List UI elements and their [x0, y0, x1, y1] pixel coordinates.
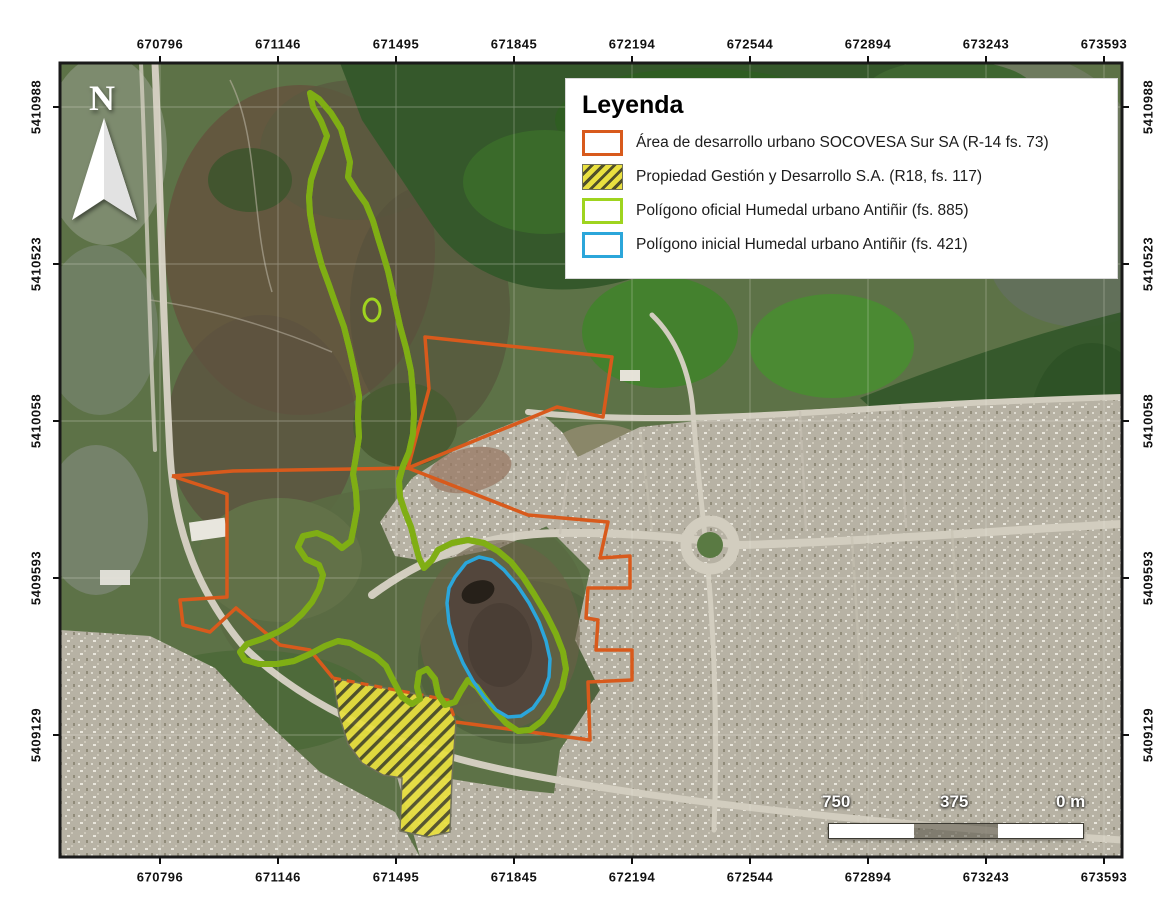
y-axis-label-left: 5409129 — [29, 708, 44, 762]
x-axis-label-bottom: 672544 — [727, 870, 773, 885]
green-outline-swatch — [582, 198, 623, 224]
svg-text:N: N — [89, 78, 115, 118]
legend-item-label: Área de desarrollo urbano SOCOVESA Sur S… — [636, 134, 1049, 152]
scale-bar: 750 375 0 m — [828, 792, 1086, 844]
x-axis-label-top: 670796 — [137, 37, 183, 52]
x-axis-label-top: 672894 — [845, 37, 891, 52]
x-axis-label-bottom: 671845 — [491, 870, 537, 885]
x-axis-label-bottom: 671146 — [255, 870, 301, 885]
x-axis-label-bottom: 673593 — [1081, 870, 1127, 885]
y-axis-label-left: 5410058 — [29, 394, 44, 448]
x-axis-label-top: 673593 — [1081, 37, 1127, 52]
x-axis-label-bottom: 673243 — [963, 870, 1009, 885]
x-axis-label-bottom: 670796 — [137, 870, 183, 885]
legend-item: Área de desarrollo urbano SOCOVESA Sur S… — [582, 130, 1103, 156]
y-axis-label-left: 5410988 — [29, 80, 44, 134]
industrial-building — [100, 570, 130, 585]
scale-label-750: 750 — [822, 792, 850, 812]
x-axis-label-bottom: 672894 — [845, 870, 891, 885]
blue-outline-swatch — [582, 232, 623, 258]
legend-title: Leyenda — [582, 91, 1103, 120]
legend-item-label: Polígono inicial Humedal urbano Antiñir … — [636, 236, 968, 254]
y-axis-label-left: 5410523 — [29, 237, 44, 291]
x-axis-label-bottom: 671495 — [373, 870, 419, 885]
x-axis-label-top: 671495 — [373, 37, 419, 52]
scale-label-375: 375 — [940, 792, 968, 812]
legend-item-label: Propiedad Gestión y Desarrollo S.A. (R18… — [636, 168, 982, 186]
x-axis-label-top: 671845 — [491, 37, 537, 52]
legend-item: Polígono inicial Humedal urbano Antiñir … — [582, 232, 1103, 258]
legend-item: Propiedad Gestión y Desarrollo S.A. (R18… — [582, 164, 1103, 190]
map-document: N 67079667079667114667114667149567149567… — [0, 0, 1170, 904]
y-axis-label-right: 5409129 — [1141, 708, 1156, 762]
roundabout — [697, 532, 723, 558]
y-axis-label-left: 5409593 — [29, 551, 44, 605]
y-axis-label-right: 5410988 — [1141, 80, 1156, 134]
industrial-building — [620, 370, 640, 381]
orange-outline-swatch — [582, 130, 623, 156]
legend-item: Polígono oficial Humedal urbano Antiñir … — [582, 198, 1103, 224]
x-axis-label-bottom: 672194 — [609, 870, 655, 885]
x-axis-label-top: 673243 — [963, 37, 1009, 52]
y-axis-label-right: 5410058 — [1141, 394, 1156, 448]
legend-item-label: Polígono oficial Humedal urbano Antiñir … — [636, 202, 969, 220]
scale-bar-segments — [828, 823, 1084, 839]
x-axis-label-top: 672544 — [727, 37, 773, 52]
scale-label-0m: 0 m — [1056, 792, 1085, 812]
x-axis-label-top: 671146 — [255, 37, 301, 52]
y-axis-label-right: 5410523 — [1141, 237, 1156, 291]
y-axis-label-right: 5409593 — [1141, 551, 1156, 605]
yellow-hatch-swatch — [582, 164, 623, 190]
legend: Leyenda Área de desarrollo urbano SOCOVE… — [565, 78, 1118, 279]
x-axis-label-top: 672194 — [609, 37, 655, 52]
